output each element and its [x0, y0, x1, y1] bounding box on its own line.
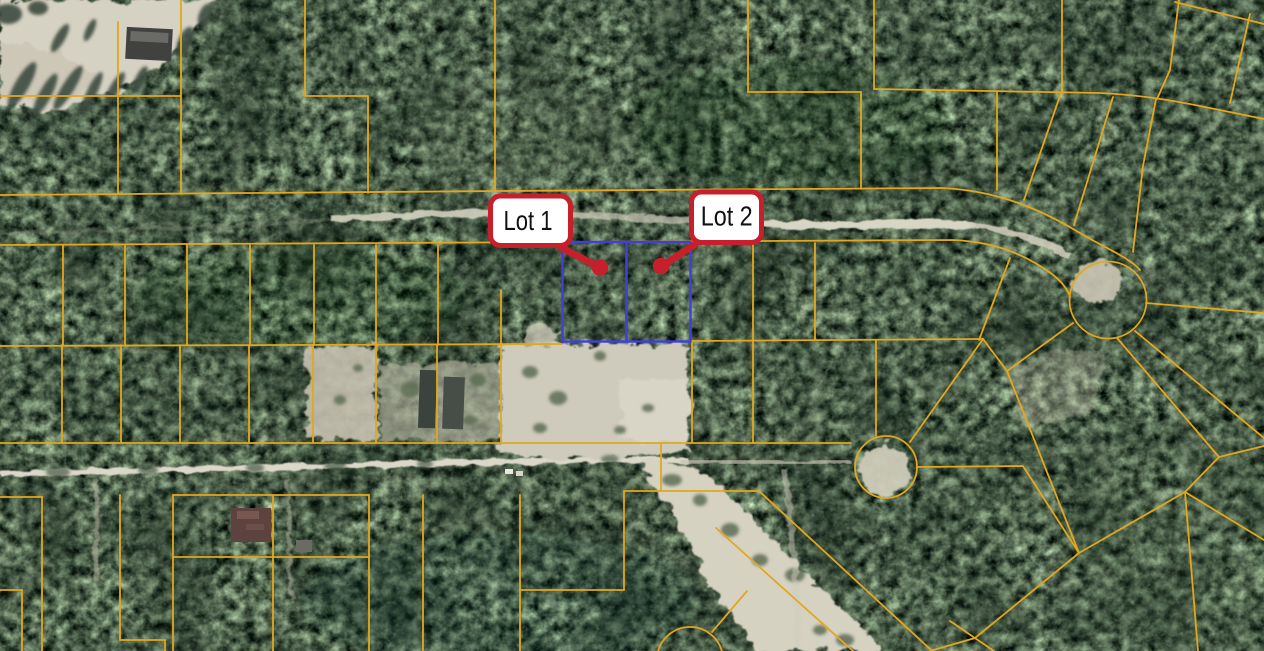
svg-text:Lot 2: Lot 2 [701, 200, 753, 231]
svg-text:Lot 1: Lot 1 [504, 205, 553, 236]
